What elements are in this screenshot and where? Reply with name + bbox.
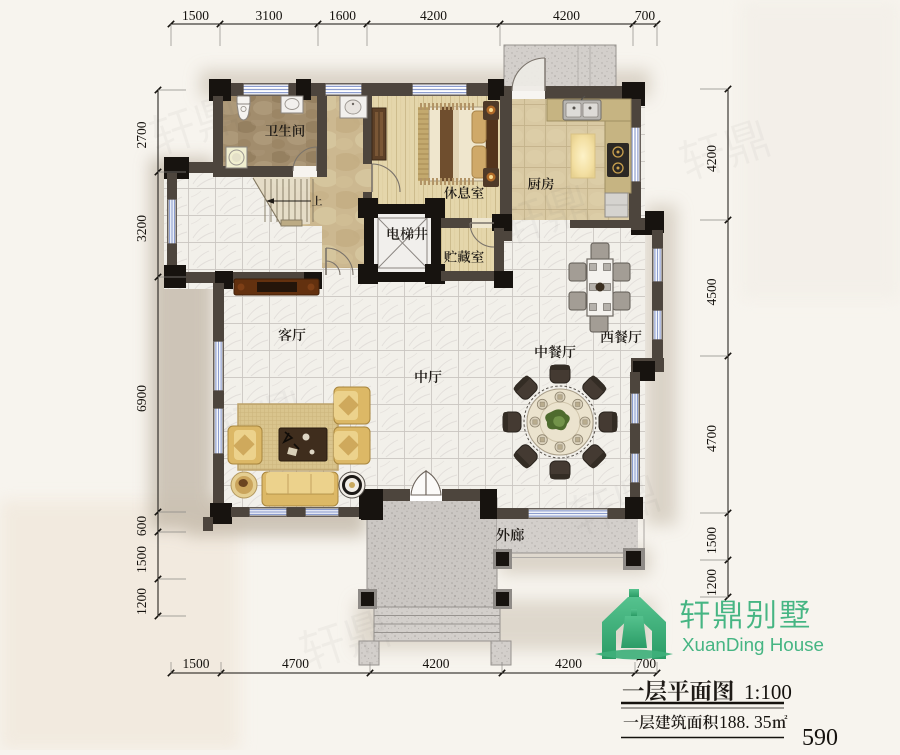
svg-text:600: 600 (134, 516, 149, 537)
svg-text:4200: 4200 (555, 656, 582, 671)
svg-text:XuanDing House: XuanDing House (682, 634, 824, 655)
svg-text:1:100: 1:100 (744, 680, 792, 704)
svg-text:4200: 4200 (704, 145, 719, 172)
svg-text:1500: 1500 (134, 546, 149, 573)
svg-text:4500: 4500 (704, 278, 719, 305)
svg-text:3100: 3100 (256, 8, 283, 23)
svg-text:4200: 4200 (553, 8, 580, 23)
svg-text:2700: 2700 (134, 121, 149, 148)
svg-text:4200: 4200 (420, 8, 447, 23)
svg-text:700: 700 (636, 656, 657, 671)
svg-text:6900: 6900 (134, 385, 149, 412)
svg-text:590: 590 (802, 725, 838, 750)
svg-text:188. 35: 188. 35 (719, 712, 772, 732)
svg-text:1500: 1500 (183, 656, 210, 671)
svg-text:1600: 1600 (329, 8, 356, 23)
svg-text:1200: 1200 (134, 588, 149, 615)
svg-text:700: 700 (635, 8, 656, 23)
svg-text:1500: 1500 (704, 527, 719, 554)
svg-text:1200: 1200 (704, 569, 719, 596)
svg-text:1500: 1500 (182, 8, 209, 23)
svg-text:4200: 4200 (423, 656, 450, 671)
svg-text:4700: 4700 (282, 656, 309, 671)
svg-text:3200: 3200 (134, 215, 149, 242)
svg-text:4700: 4700 (704, 425, 719, 452)
